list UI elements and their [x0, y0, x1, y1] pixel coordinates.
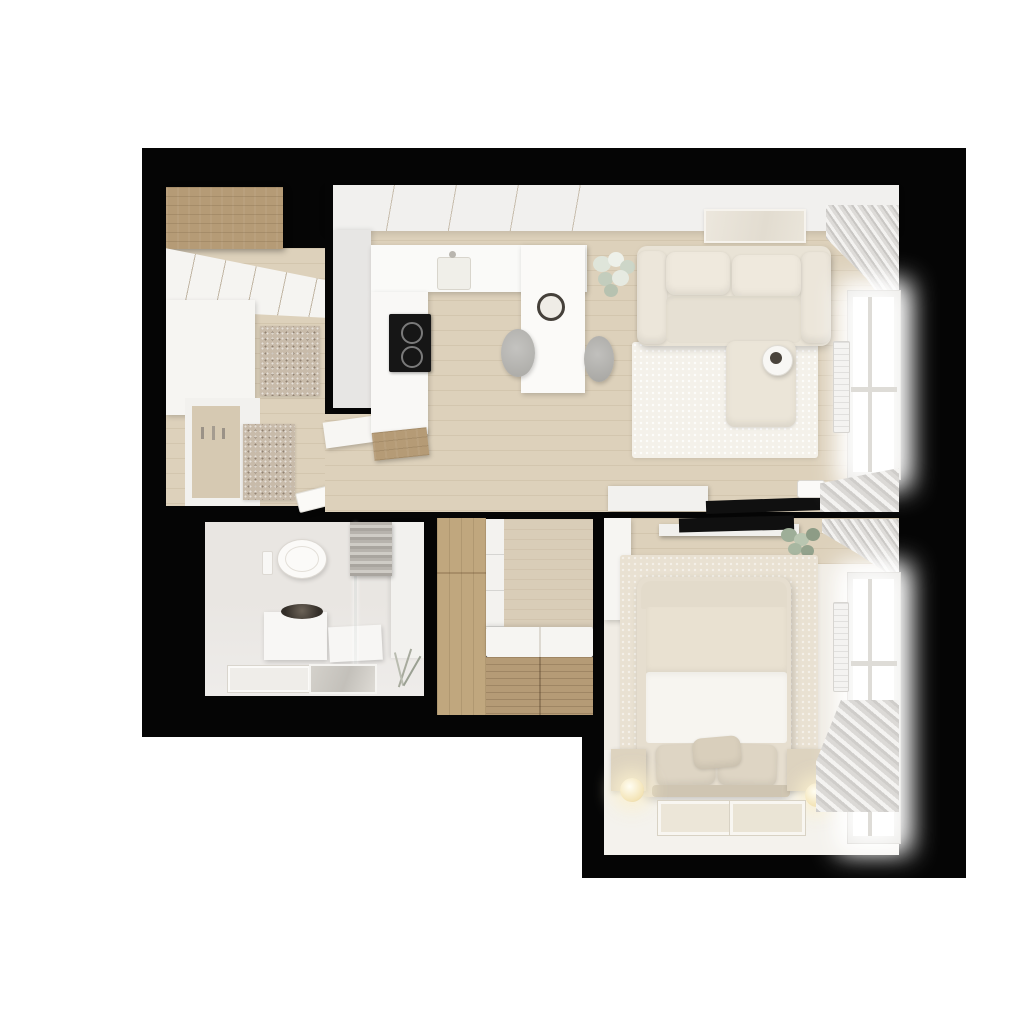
- coat-hook: [201, 427, 204, 439]
- kitchen-tall-cabinet: [333, 230, 371, 408]
- side-table-tray: [770, 352, 782, 364]
- bath-mat: [228, 666, 310, 692]
- entry-niche-back: [192, 406, 240, 498]
- bathroom-right-wall: [391, 522, 424, 658]
- vanity: [264, 612, 327, 660]
- floor-art-frame: [730, 801, 805, 835]
- plan-backdrop: [0, 0, 1024, 1024]
- counter-wood-end-panel: [372, 427, 430, 461]
- sofa-armrest-right: [801, 252, 831, 343]
- closet-interior-back: [504, 519, 593, 628]
- floor-plan-canvas: [0, 0, 1024, 1024]
- hall-kitchen-wall: [325, 148, 333, 404]
- closet-wood-seam: [437, 572, 486, 574]
- sofa-seat: [666, 296, 801, 343]
- window-mullion: [868, 297, 872, 472]
- shower-mat-glossy: [309, 664, 377, 694]
- tv-sideboard: [608, 486, 708, 511]
- living-radiator: [833, 341, 850, 433]
- vanity-basin: [281, 604, 323, 619]
- sofa-armrest-left: [637, 251, 667, 344]
- bed-foot-section: [641, 581, 787, 609]
- bedroom-tv: [679, 515, 794, 532]
- window-glass: [853, 297, 894, 472]
- closet-wood-column: [437, 518, 486, 715]
- bed-pillow-small: [692, 735, 743, 770]
- entry-runner-rug: [243, 424, 295, 500]
- closet-drawer-seam: [539, 657, 541, 715]
- entry-doormat: [260, 326, 320, 396]
- kitchen-ceiling-seams: [333, 185, 587, 231]
- floor-art-frame: [658, 801, 733, 835]
- bed-mattress-edge: [652, 785, 790, 797]
- stool: [584, 336, 614, 382]
- cooktop-burner: [401, 346, 423, 368]
- sofa-back-cushion: [666, 252, 730, 295]
- living-window: [847, 290, 901, 480]
- wall-art: [704, 209, 806, 243]
- stool: [501, 329, 535, 377]
- decor-bowl: [537, 293, 565, 321]
- coat-hook: [222, 428, 225, 439]
- closet-shelf-stack: [486, 519, 504, 628]
- kitchen-faucet: [449, 251, 456, 258]
- window-mullion: [851, 387, 897, 392]
- window-mullion: [851, 661, 897, 666]
- kitchen-sink: [437, 257, 471, 290]
- closet-bench-seam: [539, 627, 541, 657]
- coat-hook: [212, 426, 215, 440]
- bed-duvet: [646, 672, 787, 743]
- sofa-back-cushion: [732, 255, 801, 298]
- flush-plate: [262, 551, 273, 575]
- cooktop-burner: [401, 322, 423, 344]
- towels: [350, 522, 392, 576]
- bed-blanket: [646, 607, 787, 673]
- entry-wood-cabinet: [166, 187, 283, 249]
- sphere-lamp: [620, 778, 644, 802]
- toilet-seat-line: [285, 546, 319, 572]
- bedroom-radiator: [833, 602, 849, 692]
